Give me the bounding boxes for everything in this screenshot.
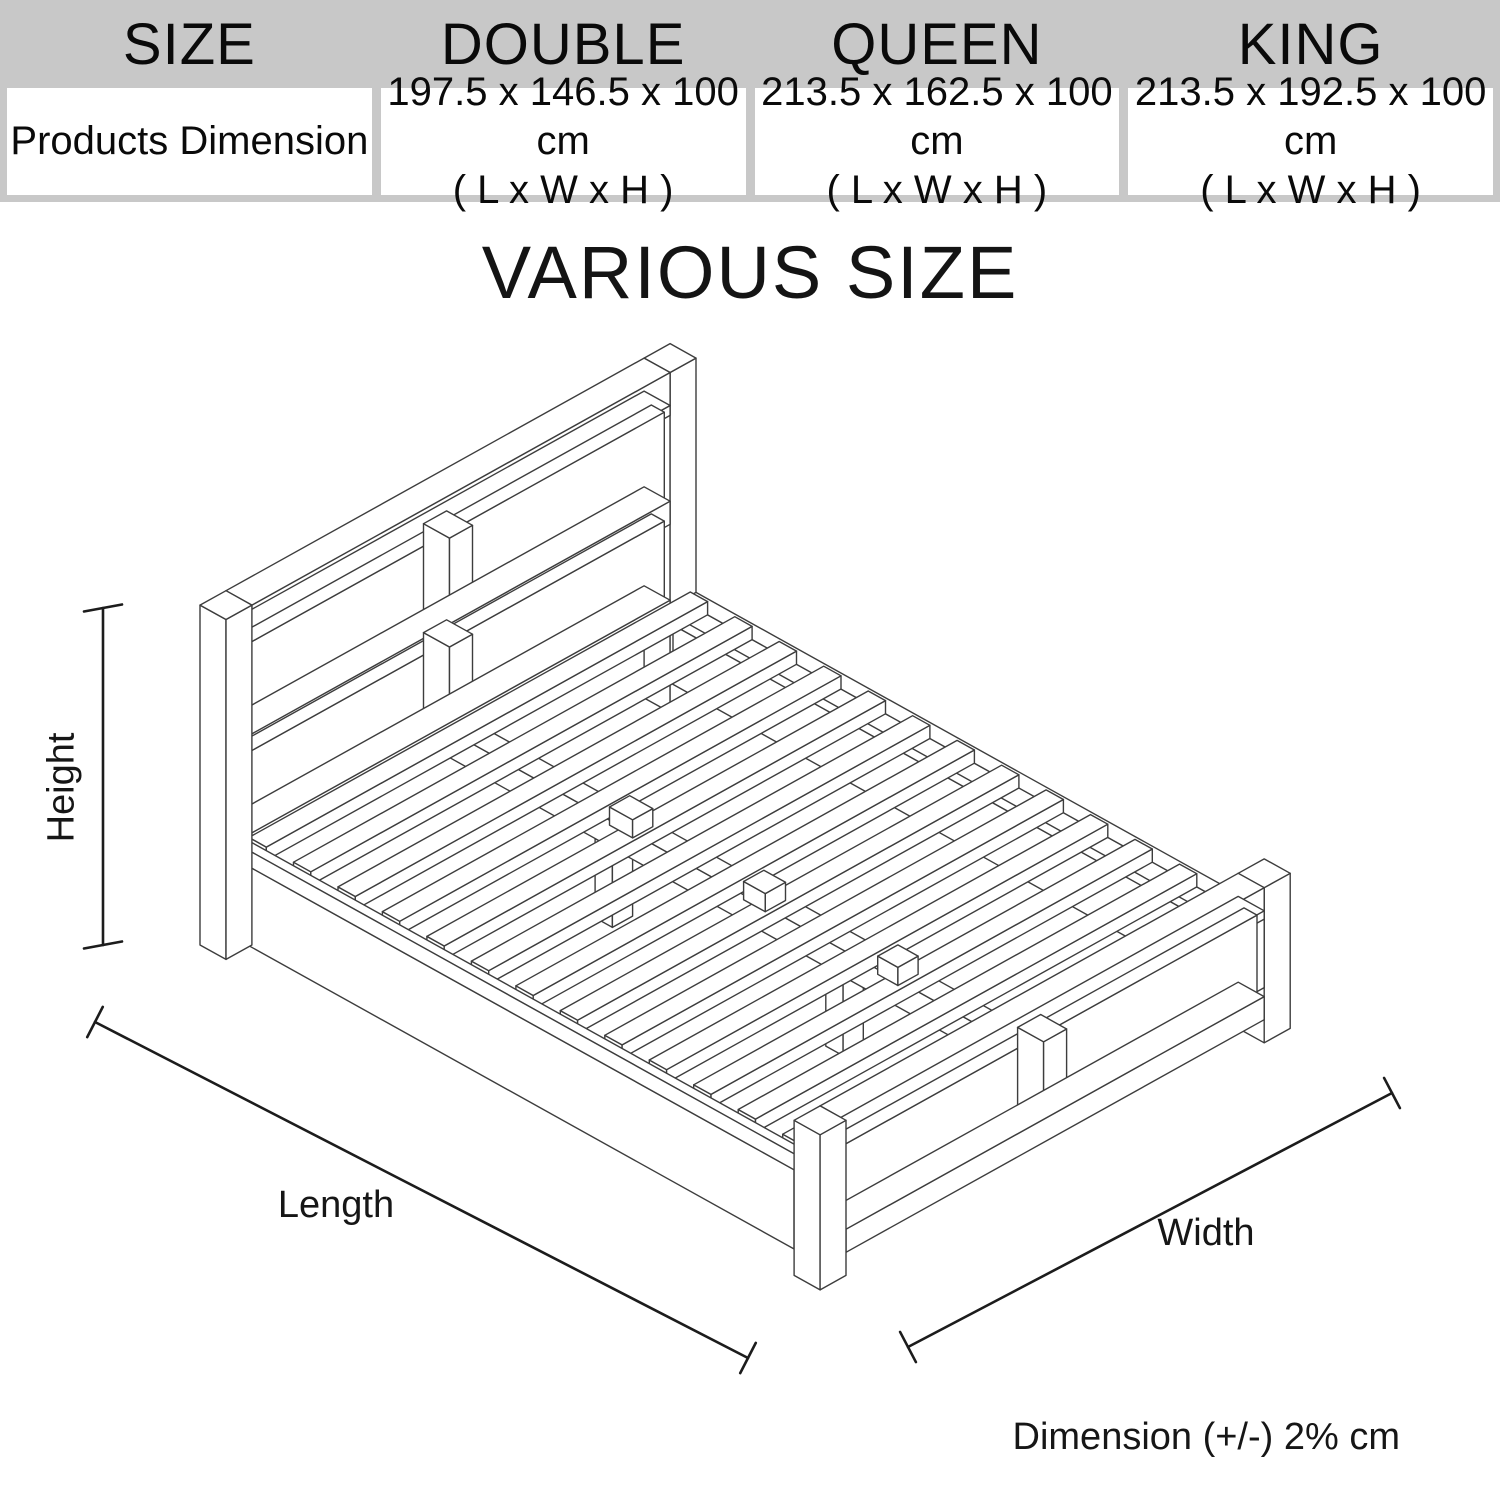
column-header-size: SIZE xyxy=(7,11,372,78)
row-label-cell: Products Dimension xyxy=(7,88,372,195)
queen-dimensions: 213.5 x 162.5 x 100 cm xyxy=(755,68,1120,166)
double-dimension-cell: 197.5 x 146.5 x 100 cm ( L x W x H ) xyxy=(381,88,746,195)
queen-dimension-cell: 213.5 x 162.5 x 100 cm ( L x W x H ) xyxy=(755,88,1120,195)
king-dimensions: 213.5 x 192.5 x 100 cm xyxy=(1128,68,1493,166)
width-dimension-label: Width xyxy=(1126,1212,1286,1255)
length-dimension-label: Length xyxy=(256,1184,416,1227)
king-dimension-cell: 213.5 x 192.5 x 100 cm ( L x W x H ) xyxy=(1128,88,1493,195)
height-dimension-label: Height xyxy=(41,718,84,858)
double-axes-note: ( L x W x H ) xyxy=(381,166,746,215)
queen-axes-note: ( L x W x H ) xyxy=(755,166,1120,215)
double-dimensions: 197.5 x 146.5 x 100 cm xyxy=(381,68,746,166)
bed-isometric-drawing xyxy=(0,0,1500,1500)
page-title: VARIOUS SIZE xyxy=(0,230,1500,315)
tolerance-footnote: Dimension (+/-) 2% cm xyxy=(990,1416,1400,1459)
size-spec-table: SIZE DOUBLE QUEEN KING Products Dimensio… xyxy=(0,0,1500,202)
product-dimension-sheet: { "page": { "title": "VARIOUS SIZE", "fo… xyxy=(0,0,1500,1500)
king-axes-note: ( L x W x H ) xyxy=(1128,166,1493,215)
table-data-row: Products Dimension 197.5 x 146.5 x 100 c… xyxy=(0,88,1500,202)
row-label: Products Dimension xyxy=(7,117,372,166)
